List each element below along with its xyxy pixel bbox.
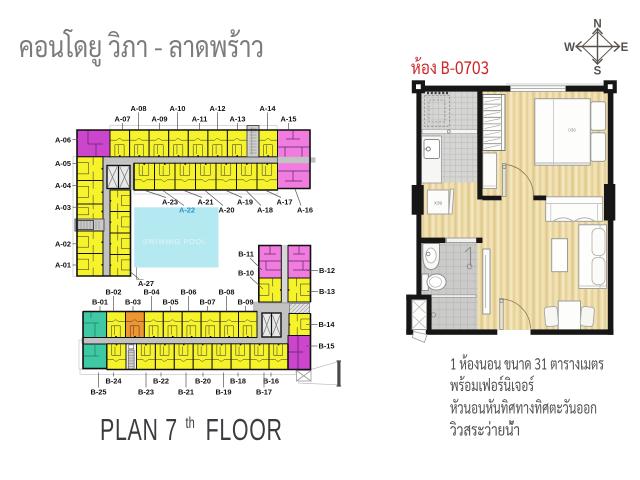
svg-text:B-14: B-14 [318, 320, 335, 329]
svg-text:B-25: B-25 [90, 388, 106, 397]
svg-text:B-21: B-21 [178, 388, 194, 397]
svg-text:B-15: B-15 [318, 342, 334, 351]
svg-text:B-11: B-11 [238, 250, 254, 259]
svg-text:A-17: A-17 [276, 198, 292, 207]
svg-text:A-05: A-05 [55, 159, 71, 168]
svg-text:A-12: A-12 [209, 104, 225, 113]
svg-text:B-22: B-22 [153, 377, 169, 386]
svg-text:038: 038 [568, 128, 576, 133]
svg-text:A-13: A-13 [229, 115, 245, 124]
svg-text:A-03: A-03 [55, 203, 71, 212]
svg-text:FLOOR: FLOOR [206, 412, 283, 447]
svg-text:A-10: A-10 [169, 104, 185, 113]
svg-text:B-16: B-16 [263, 377, 279, 386]
svg-text:B-09: B-09 [237, 298, 253, 307]
svg-text:A-22: A-22 [179, 206, 195, 215]
svg-text:B-12: B-12 [319, 266, 335, 275]
svg-text:B-19: B-19 [215, 388, 231, 397]
svg-text:S: S [594, 66, 602, 78]
svg-text:A-14: A-14 [259, 104, 276, 113]
svg-text:A-18: A-18 [257, 206, 273, 215]
svg-text:E: E [621, 42, 629, 54]
svg-text:B-03: B-03 [125, 298, 141, 307]
svg-text:B-10: B-10 [238, 269, 254, 278]
svg-text:N: N [593, 19, 601, 31]
svg-text:A-01: A-01 [55, 261, 71, 270]
svg-text:W: W [564, 42, 575, 54]
svg-text:A-06: A-06 [55, 135, 71, 144]
svg-text:A-11: A-11 [192, 115, 208, 124]
svg-text:A-08: A-08 [130, 104, 146, 113]
svg-text:A-07: A-07 [114, 115, 130, 124]
svg-text:A-16: A-16 [297, 206, 313, 215]
svg-text:B-07: B-07 [199, 298, 215, 307]
svg-text:A-20: A-20 [218, 206, 234, 215]
svg-text:A-23: A-23 [162, 198, 178, 207]
svg-text:A-02: A-02 [55, 239, 71, 248]
svg-text:SWIMMIG POOL: SWIMMIG POOL [143, 237, 207, 246]
svg-text:X39: X39 [434, 201, 443, 206]
svg-text:th: th [186, 414, 195, 431]
svg-text:A-21: A-21 [197, 198, 213, 207]
svg-text:A-19: A-19 [237, 198, 253, 207]
svg-text:B-17: B-17 [256, 388, 272, 397]
svg-text:B-18: B-18 [230, 377, 246, 386]
svg-text:A-09: A-09 [151, 115, 167, 124]
svg-text:B-01: B-01 [92, 298, 108, 307]
svg-text:B-08: B-08 [218, 288, 234, 297]
svg-text:B-13: B-13 [319, 287, 335, 296]
svg-text:B-20: B-20 [195, 377, 211, 386]
svg-text:B-05: B-05 [162, 298, 178, 307]
svg-text:B-02: B-02 [105, 288, 121, 297]
svg-text:B-24: B-24 [105, 377, 122, 386]
svg-text:B-06: B-06 [180, 288, 196, 297]
svg-text:B-04: B-04 [143, 288, 160, 297]
svg-text:A-04: A-04 [55, 181, 72, 190]
svg-text:PLAN 7: PLAN 7 [100, 412, 178, 447]
svg-text:B-23: B-23 [138, 388, 154, 397]
svg-text:A-15: A-15 [280, 115, 296, 124]
